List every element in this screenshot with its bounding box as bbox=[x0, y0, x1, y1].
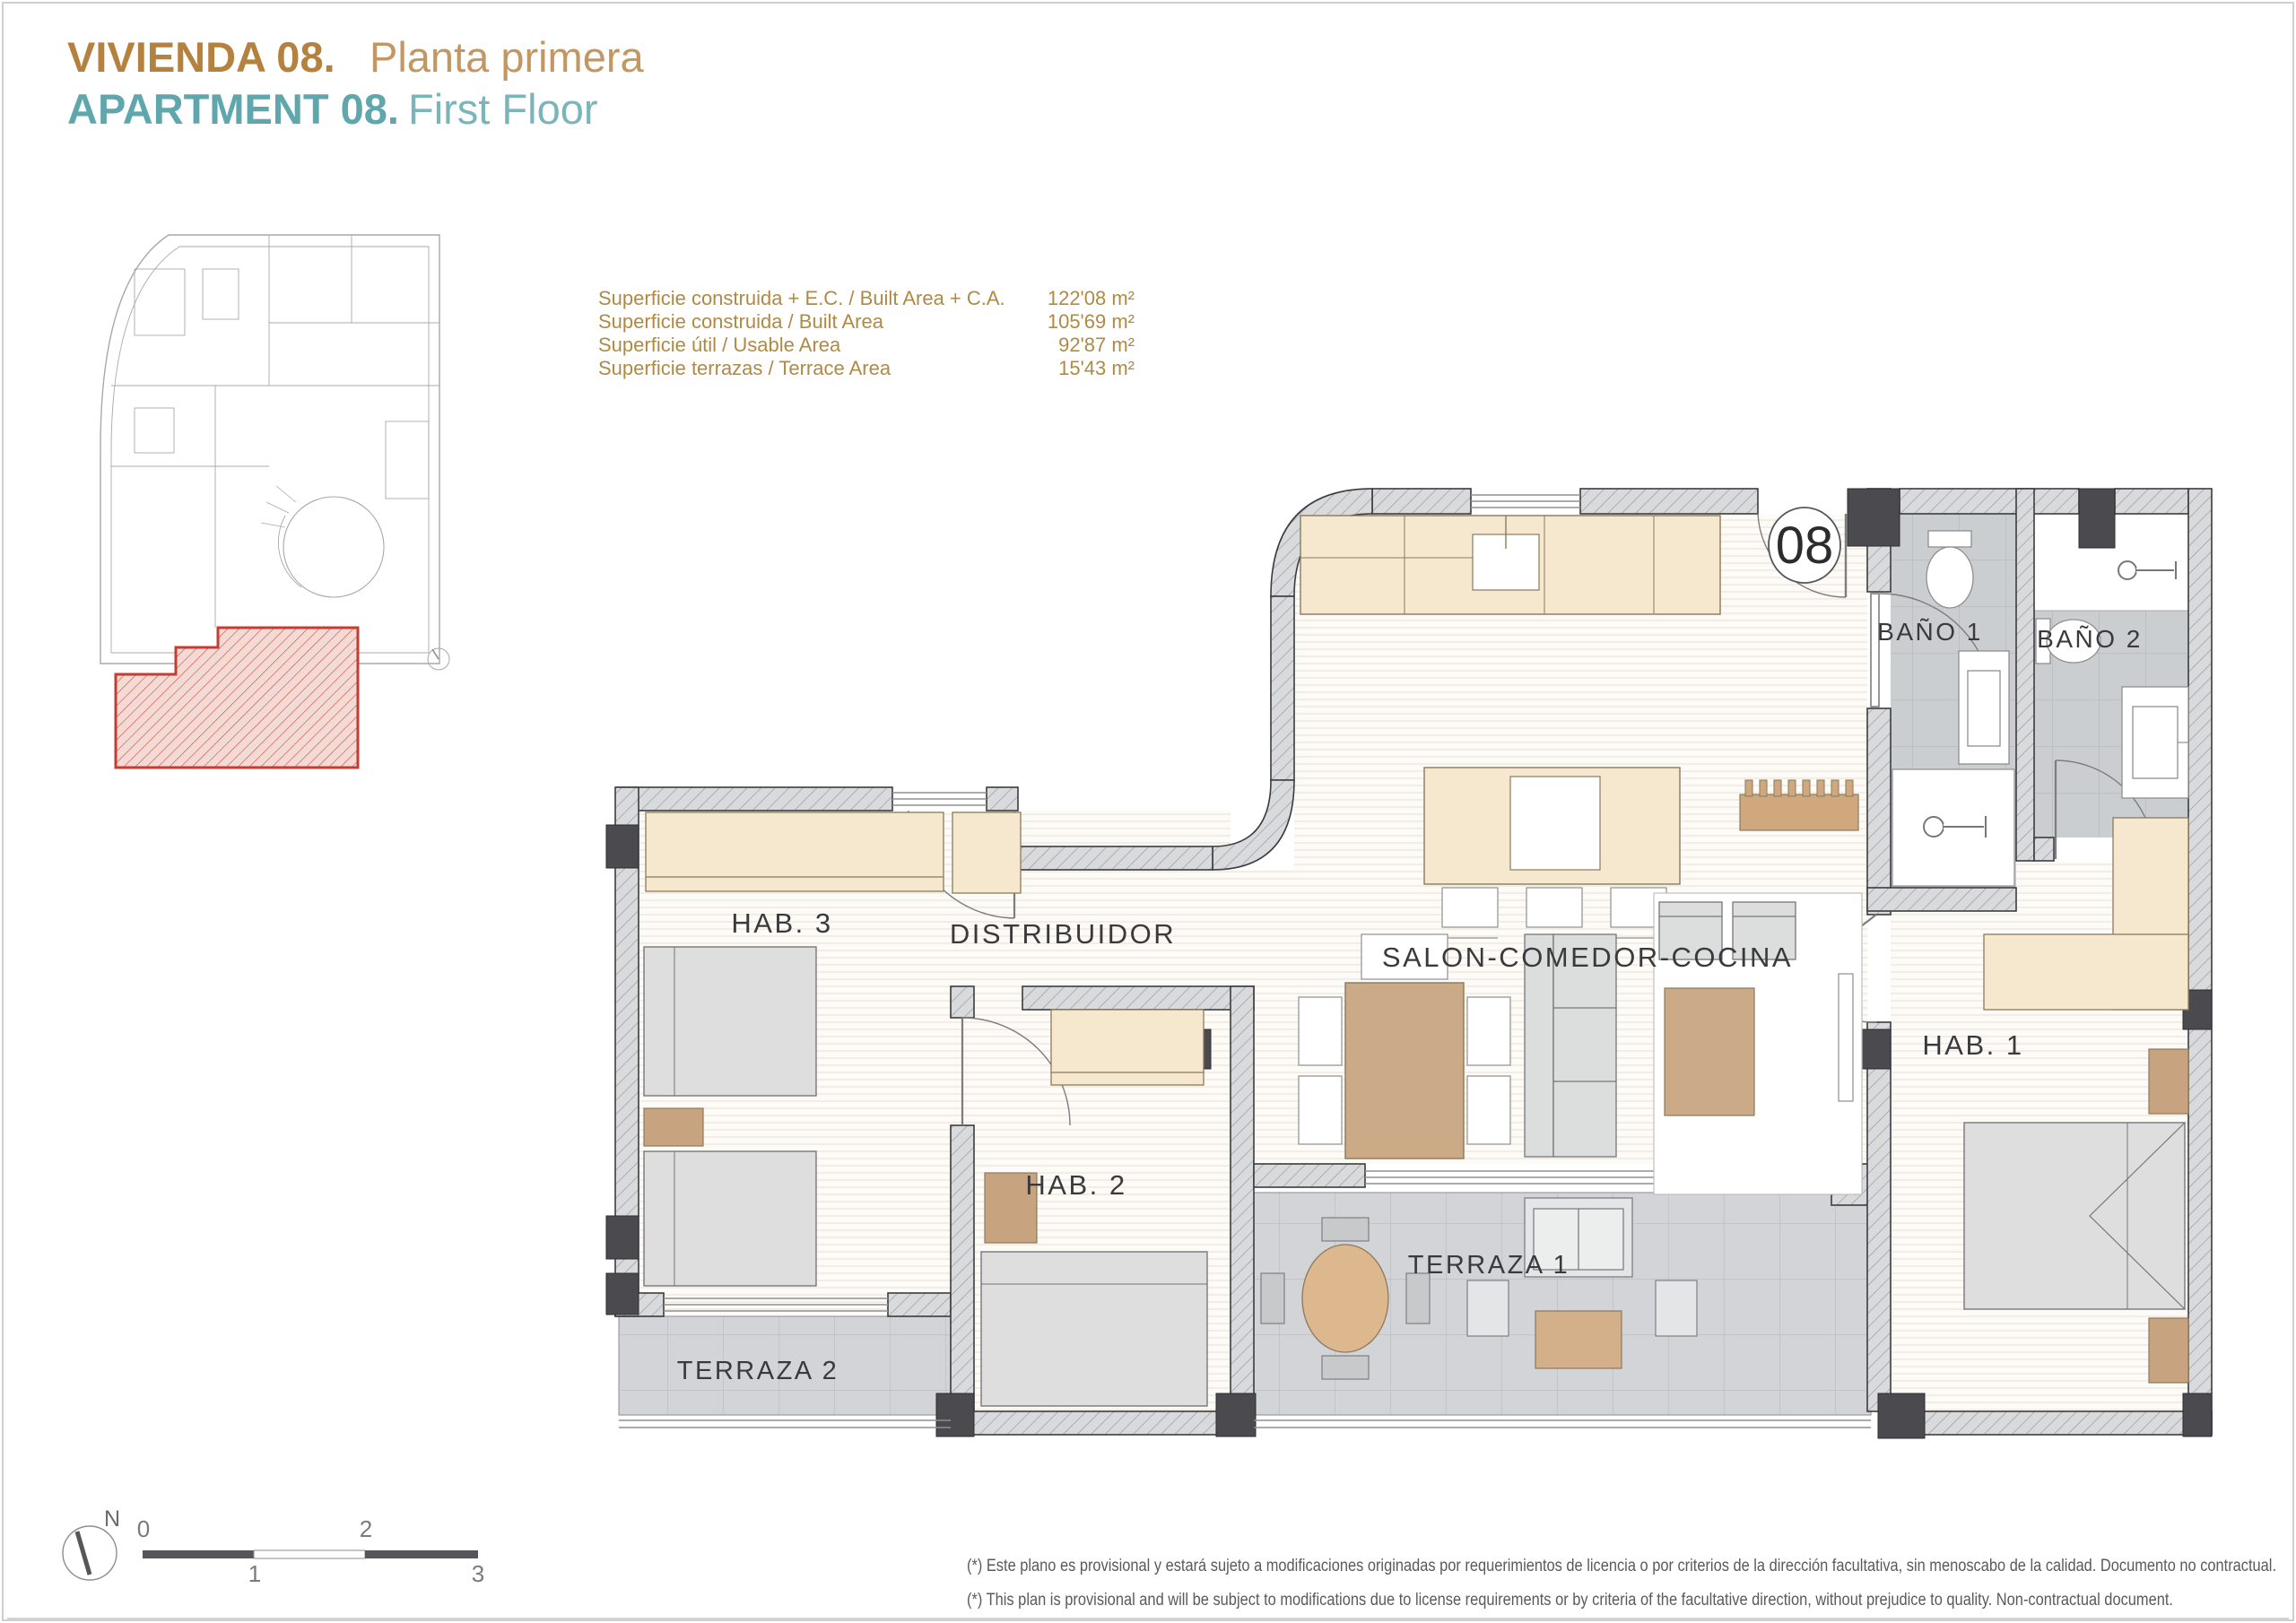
area-row-value: 92'87 m² bbox=[1058, 334, 1135, 356]
scale-tick: 3 bbox=[472, 1560, 484, 1587]
coffee-table bbox=[1665, 988, 1754, 1115]
column bbox=[936, 1393, 974, 1436]
wall bbox=[951, 1411, 1254, 1435]
label-terraza1: TERRAZA 1 bbox=[1408, 1251, 1570, 1280]
wall bbox=[951, 1125, 974, 1411]
wall bbox=[1022, 986, 1254, 1010]
apartment-number: 08 bbox=[1776, 516, 1834, 575]
nightstand bbox=[2149, 1318, 2188, 1383]
key-plan-outline bbox=[100, 235, 439, 664]
wall bbox=[2115, 489, 2188, 514]
label-terraza2: TERRAZA 2 bbox=[677, 1357, 839, 1385]
wall bbox=[1372, 489, 1471, 514]
footnote-es: (*) Este plano es provisional y estará s… bbox=[967, 1557, 2276, 1575]
title-es-light: Planta primera bbox=[370, 33, 644, 81]
nightstand bbox=[2149, 1049, 2188, 1114]
wall bbox=[951, 986, 974, 1018]
hab3-wardrobe bbox=[646, 812, 944, 891]
column bbox=[2079, 489, 2115, 548]
side-table bbox=[1656, 1280, 1697, 1336]
title-es-bold: VIVIENDA 08. bbox=[67, 33, 335, 81]
apartment-number-badge: 08 bbox=[1769, 508, 1840, 583]
wall bbox=[1016, 846, 1213, 870]
area-row-label: Superficie construida / Built Area bbox=[598, 310, 884, 333]
hab3-bed bbox=[644, 947, 816, 1096]
wall bbox=[2034, 838, 2054, 861]
area-row-value: 15'43 m² bbox=[1058, 357, 1135, 379]
wall bbox=[1867, 708, 1891, 915]
wall bbox=[2016, 489, 2034, 861]
scale-tick: 0 bbox=[137, 1515, 150, 1542]
scale-segment-dark bbox=[365, 1550, 478, 1558]
hab3-bed bbox=[644, 1151, 816, 1286]
hab2-bed bbox=[981, 1252, 1207, 1406]
wall bbox=[2188, 489, 2212, 1435]
living-furniture bbox=[1525, 893, 1862, 1194]
wall bbox=[1885, 1411, 2212, 1435]
hab1-wardrobe bbox=[1984, 934, 2188, 1010]
hab2-wardrobe bbox=[1051, 1010, 1204, 1085]
column bbox=[606, 825, 639, 868]
vanity bbox=[1959, 651, 2009, 764]
scale-tick: 1 bbox=[248, 1560, 261, 1587]
label-bano2: BAÑO 2 bbox=[2037, 625, 2143, 653]
nightstand bbox=[644, 1108, 703, 1146]
hab1-bed bbox=[1964, 1123, 2185, 1309]
area-row-label: Superficie terrazas / Terrace Area bbox=[598, 357, 891, 379]
toilet-icon bbox=[1926, 547, 1973, 608]
north-label: N bbox=[104, 1506, 120, 1532]
wall bbox=[987, 787, 1018, 811]
column bbox=[2183, 1393, 2212, 1436]
tv-sideboard bbox=[1839, 974, 1853, 1101]
floor-plan-page: VIVIENDA 08. Planta primera APARTMENT 08… bbox=[0, 0, 2296, 1623]
wall bbox=[617, 787, 892, 811]
wall bbox=[1231, 986, 1254, 1411]
area-row-label: Superficie construida + E.C. / Built Are… bbox=[598, 287, 1005, 309]
footnote-en: (*) This plan is provisional and will be… bbox=[967, 1591, 2173, 1610]
outdoor-rug bbox=[1535, 1311, 1622, 1368]
wall bbox=[1867, 888, 2016, 911]
area-row-label: Superficie útil / Usable Area bbox=[598, 334, 841, 356]
floor-plan-canvas: VIVIENDA 08. Planta primera APARTMENT 08… bbox=[0, 0, 2296, 1623]
label-distribuidor: DISTRIBUIDOR bbox=[950, 918, 1176, 950]
label-hab3: HAB. 3 bbox=[731, 907, 832, 939]
column bbox=[606, 1216, 639, 1259]
side-table bbox=[1467, 1280, 1509, 1336]
area-row-value: 122'08 m² bbox=[1048, 287, 1135, 309]
title-en-bold: APARTMENT 08. bbox=[67, 85, 399, 133]
column bbox=[1216, 1393, 1256, 1436]
scale-segment-dark bbox=[143, 1550, 254, 1558]
toilet-tank bbox=[1928, 531, 1971, 547]
hall-cabinet bbox=[952, 812, 1021, 893]
outdoor-table bbox=[1302, 1245, 1388, 1352]
label-bano1: BAÑO 1 bbox=[1877, 618, 1983, 646]
dining-table bbox=[1345, 983, 1464, 1159]
title-en-light: First Floor bbox=[408, 85, 598, 133]
wall bbox=[1271, 596, 1294, 780]
area-row-value: 105'69 m² bbox=[1048, 310, 1135, 333]
wall bbox=[1254, 1164, 1365, 1187]
wall bbox=[888, 1293, 951, 1316]
wall bbox=[1867, 1022, 1891, 1411]
scale-segment-light bbox=[254, 1550, 365, 1558]
cooktop bbox=[1510, 777, 1600, 870]
column bbox=[1848, 489, 1900, 546]
label-salon: SALON-COMEDOR-COCINA bbox=[1382, 942, 1793, 973]
column bbox=[1878, 1393, 1925, 1438]
label-hab1: HAB. 1 bbox=[1922, 1029, 2023, 1061]
wall bbox=[1900, 489, 2079, 514]
column bbox=[606, 1273, 639, 1315]
scale-tick: 2 bbox=[360, 1515, 372, 1542]
wall bbox=[1580, 489, 1758, 514]
label-hab2: HAB. 2 bbox=[1025, 1169, 1126, 1201]
